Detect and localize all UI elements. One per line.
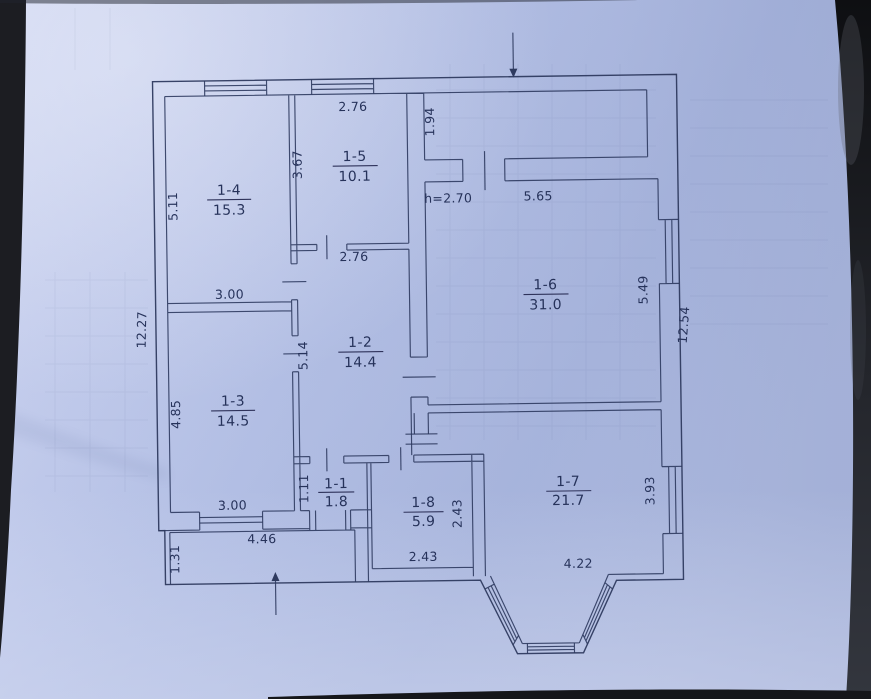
dim-room17-bottom: 4.22: [564, 556, 593, 571]
door-vestibule: [485, 151, 486, 190]
floor-plan-photo: 1-4 15.3 1-5 10.1 1-6 31.0 1-2 14.4 1-3 …: [0, 0, 871, 699]
dim-room15-top: 2.76: [338, 99, 367, 114]
dim-porch-top: 4.46: [247, 531, 276, 546]
room-label-1-2-area: 14.4: [344, 355, 377, 371]
room-label-1-5-id: 1-5: [342, 149, 366, 165]
dim-room16-top: 5.65: [524, 188, 553, 203]
dim-room15-left: 3.67: [289, 150, 304, 179]
dim-room15-below: 2.76: [339, 249, 368, 264]
dim-room14-bottom: 3.00: [215, 286, 244, 301]
dim-ceiling-height: h=2.70: [424, 190, 472, 206]
floor-plan-canvas: 1-4 15.3 1-5 10.1 1-6 31.0 1-2 14.4 1-3 …: [0, 0, 871, 699]
room-label-1-4-id: 1-4: [217, 182, 241, 198]
room-label-1-8-area: 5.9: [412, 514, 436, 530]
backdrop-glare-2: [850, 260, 866, 400]
dim-left-wall-total: 12.27: [134, 311, 150, 349]
dim-porch-left: 1.31: [167, 545, 182, 574]
room-label-1-3-area: 14.5: [217, 413, 250, 429]
room-label-1-6-area: 31.0: [529, 297, 562, 313]
dim-room18-bottom: 2.43: [409, 549, 438, 564]
dim-room16-right: 5.49: [635, 275, 650, 304]
room-label-1-1-area: 1.8: [325, 494, 349, 510]
dim-room17-right: 3.93: [642, 476, 657, 505]
backdrop-glare: [838, 15, 864, 165]
room-label-1-5-area: 10.1: [338, 169, 371, 185]
dim-room12-left: 5.14: [295, 341, 310, 370]
room-label-1-3-id: 1-3: [221, 393, 245, 409]
room-label-1-6-id: 1-6: [533, 277, 557, 293]
room-label-1-7-id: 1-7: [556, 474, 580, 490]
room-label-1-8-id: 1-8: [411, 495, 435, 511]
dim-room13-left: 4.85: [168, 400, 183, 429]
room-label-1-4-area: 15.3: [213, 202, 246, 218]
dim-room11-left: 1.11: [296, 474, 311, 503]
dim-room14-left: 5.11: [165, 192, 180, 221]
room-label-1-2-id: 1-2: [348, 335, 372, 351]
paper-sheet: [0, 0, 871, 699]
dim-room18-right: 2.43: [449, 499, 464, 528]
dim-room13-bottom: 3.00: [218, 497, 247, 512]
dim-right-wall-total: 12.54: [675, 306, 693, 344]
dim-vestibule-left: 1.94: [422, 107, 437, 136]
room-label-1-1-id: 1-1: [324, 476, 348, 492]
room-label-1-7-area: 21.7: [552, 493, 585, 509]
